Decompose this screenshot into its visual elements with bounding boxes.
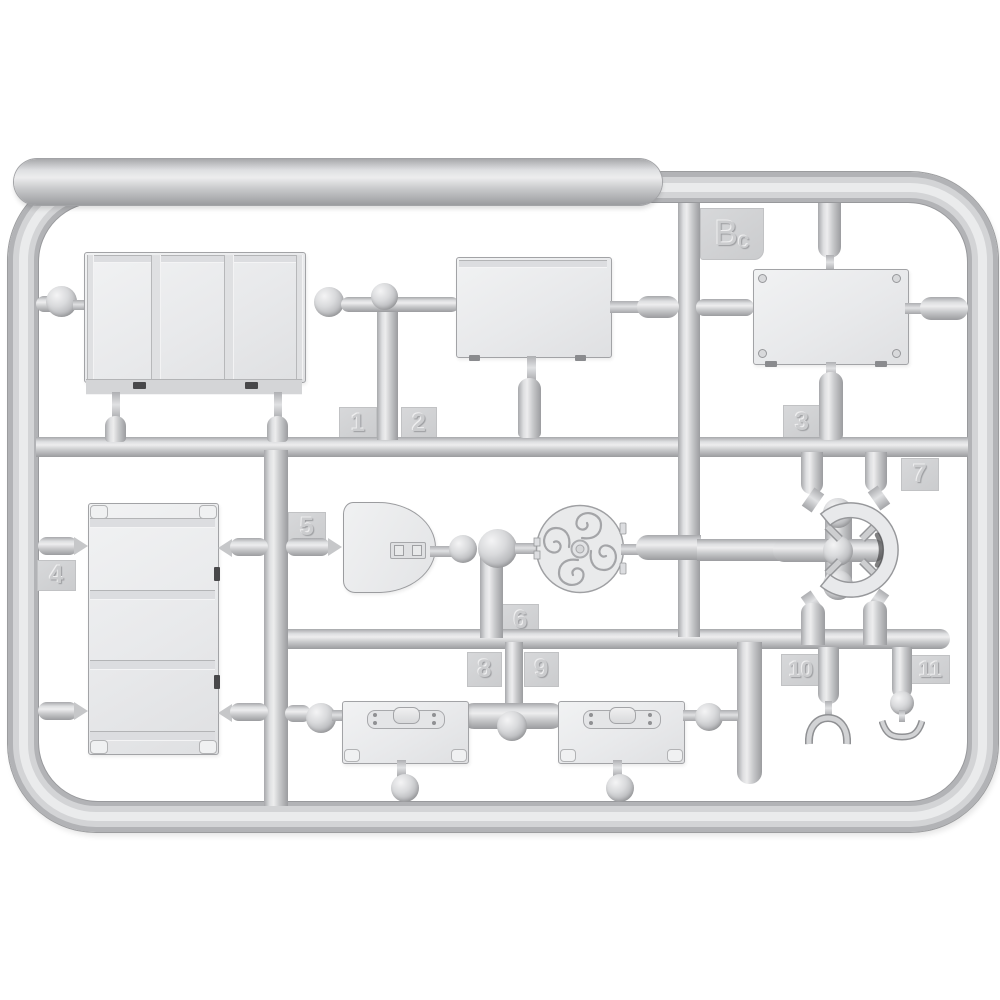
gate-bullet-box3-top <box>818 203 841 258</box>
part7-post-top-left <box>801 452 823 494</box>
runner-part89-vertical <box>505 642 523 708</box>
gate-arrow-box4-bottom <box>74 702 88 720</box>
sprue-feed-bar <box>14 159 662 205</box>
part-9-screw-br <box>648 721 652 725</box>
gate-capsule-box4-right-bottom <box>230 703 268 721</box>
part7-post-bottom-left <box>801 603 825 645</box>
part-3-rivet-br <box>892 349 901 358</box>
gate-arrow-part5 <box>328 538 342 556</box>
gate-capsule-box4-right-top <box>230 538 268 556</box>
part-1-strap-left <box>87 255 94 379</box>
runner-middle-horizontal <box>264 629 950 649</box>
part-4-corner-tl <box>90 505 108 519</box>
part-3-rivet-tl <box>758 274 767 283</box>
gate-capsule-box3-left <box>696 299 754 316</box>
runner-left-vertical <box>264 450 288 806</box>
part-4-corner-br <box>199 740 217 754</box>
part-8-screw-tl <box>373 713 377 717</box>
part-8-handle <box>393 707 420 724</box>
part7-post-bottom-right <box>863 601 887 645</box>
part-3-foot-left <box>765 361 777 367</box>
part-9-corner-bl <box>560 749 576 762</box>
part-9-corner-br <box>667 749 683 762</box>
part-6-swirl-disc <box>533 503 627 595</box>
part-1-strap-right <box>296 255 303 379</box>
part-3-rivet-tr <box>892 274 901 283</box>
part-5-socket-hole-right <box>412 545 422 556</box>
part-4-band-4 <box>90 731 215 741</box>
part-9-screw-tr <box>648 713 652 717</box>
runner-top-row-left <box>341 297 459 312</box>
part-4-band-3 <box>90 660 215 670</box>
part-4-box <box>88 503 219 755</box>
part-1-gate-bullet-left <box>105 416 126 442</box>
part-8-corner-bl <box>344 749 360 762</box>
part-10-label: 10 <box>781 654 821 686</box>
part-3-label: 3 <box>783 405 821 439</box>
part-1-strap-mid2 <box>224 255 234 379</box>
gate-capsule-part5 <box>286 538 330 556</box>
part-9-label: 9 <box>524 652 559 687</box>
part-4-label: 4 <box>37 560 76 591</box>
gate-bullet-box3-right <box>920 297 968 320</box>
part-7-label: 7 <box>901 458 939 491</box>
part-2-label: 2 <box>401 407 437 439</box>
part-4-band-2 <box>90 590 215 600</box>
gate-pin-box2-right <box>610 301 640 313</box>
sprue-ball-top-junction <box>371 283 398 310</box>
part-3-rivet-bl <box>758 349 767 358</box>
part-2-foot-left <box>469 355 480 361</box>
part-3-box <box>753 269 909 365</box>
part-4-band-1 <box>90 518 215 528</box>
part-1-strap-mid1 <box>151 255 161 379</box>
part-8-gate-ball <box>391 774 419 802</box>
part-2-box <box>456 257 612 358</box>
sprue-ball-box1-right <box>314 287 344 317</box>
part-8-screw-tr <box>432 713 436 717</box>
part-2-top-band <box>459 260 607 268</box>
gate-bullet-box2-right <box>637 296 679 318</box>
part-2-foot-right <box>575 355 586 361</box>
part-1-label: 1 <box>339 407 377 439</box>
part-9-gate-ball <box>606 774 634 802</box>
gate-arrow-box4-top <box>74 537 88 555</box>
part-8-corner-br <box>451 749 467 762</box>
part-9-handle <box>609 707 636 724</box>
part-1-latch-right <box>245 382 258 389</box>
runner-right-stub-vertical <box>737 642 762 784</box>
sprue-ball-part89 <box>497 711 527 741</box>
part-1-box <box>84 252 306 383</box>
part-9-screw-bl <box>589 721 593 725</box>
gate-capsule-part6-right <box>636 535 701 560</box>
part-5-socket-detail <box>390 542 426 559</box>
runner-upper-horizontal <box>36 437 968 457</box>
part-11-label: 11 <box>911 655 950 684</box>
part-10-hook <box>805 713 851 747</box>
sprue-id-letter-b: B <box>715 214 738 254</box>
part-8-screw-bl <box>373 721 377 725</box>
part-4-side-tab-bottom <box>214 675 220 689</box>
gate-stub-box4-bottom <box>38 702 78 720</box>
part-4-side-tab-top <box>214 567 220 581</box>
gate-pin-v3 <box>720 710 738 721</box>
part-4-corner-tr <box>199 505 217 519</box>
sprue-id-tag: Bc <box>700 208 764 260</box>
part-3-gate-bullet <box>819 372 843 440</box>
part-7-horseshoe <box>795 497 903 605</box>
sprue-ball-mid-junction <box>478 529 517 568</box>
part-1-top-band <box>87 255 301 263</box>
part-3-foot-right <box>875 361 887 367</box>
part-1-latch-left <box>133 382 146 389</box>
part-8-screw-br <box>432 721 436 725</box>
sprue-id-letter-c: c <box>738 227 750 254</box>
runner-box2-vertical <box>377 298 398 440</box>
part-8-label: 8 <box>467 652 502 687</box>
part-10-post <box>818 647 839 704</box>
part-9-box <box>558 701 685 764</box>
part-9-screw-tl <box>589 713 593 717</box>
part-8-box <box>342 701 469 764</box>
runner-center-vertical <box>678 203 700 637</box>
part-5-socket-hole-left <box>394 545 404 556</box>
sprue-ball-box9-right <box>695 703 723 731</box>
part-1-gate-bullet-right <box>267 416 288 442</box>
part-4-corner-bl <box>90 740 108 754</box>
sprue-photo: Bc 1 2 3 4 5 6 7 8 9 10 11 <box>0 0 1000 1000</box>
part-11-hook <box>879 717 925 741</box>
sprue-ball-mid-left <box>449 535 477 563</box>
gate-stub-box4-top <box>38 537 78 555</box>
part-2-gate-bullet <box>518 378 541 438</box>
